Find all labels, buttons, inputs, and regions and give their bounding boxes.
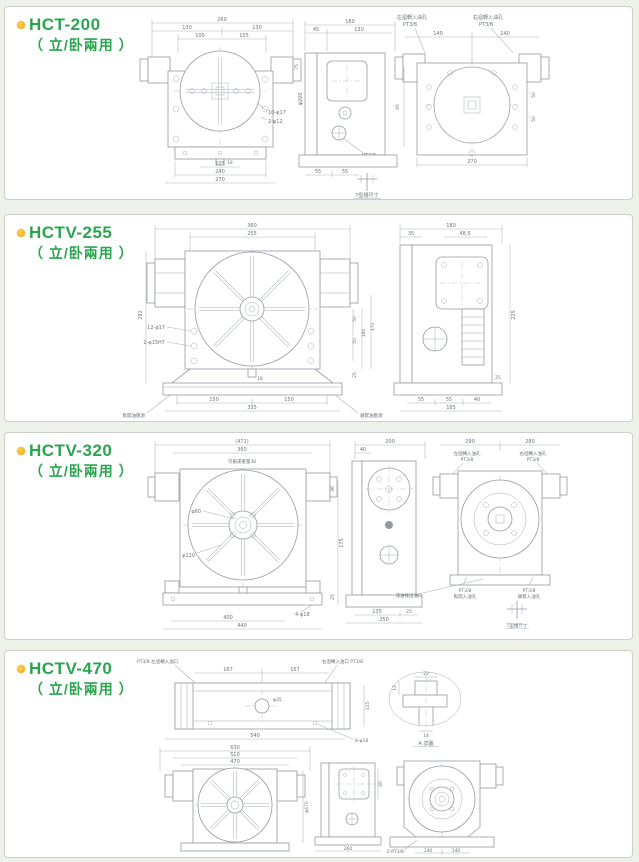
callout-right-oil-port: 右迴轉入油孔 bbox=[520, 450, 547, 457]
dim-label: 14 bbox=[423, 733, 429, 739]
dim-label: 130 bbox=[252, 25, 262, 31]
dim-label: 240 bbox=[215, 169, 225, 175]
panel-hctv-255: HCTV-255 （ 立/卧兩用 ） 360 255 12-φ17 bbox=[4, 214, 633, 422]
dim-label: 130 bbox=[182, 25, 192, 31]
dim-label: 18 bbox=[257, 376, 263, 382]
dim-label: 440 bbox=[237, 623, 247, 629]
dim-label: 360 bbox=[237, 447, 247, 453]
dim-label: 270 bbox=[467, 159, 477, 165]
dim-label: 280 bbox=[525, 439, 535, 445]
dim-label: 105 bbox=[195, 33, 205, 39]
ports-callout: 2-PT3/8 bbox=[387, 849, 404, 855]
dim-label: 48.5 bbox=[459, 231, 470, 237]
title-block: HCTV-255 （ 立/卧兩用 ） bbox=[17, 223, 134, 263]
dim-label: 292 bbox=[138, 310, 144, 320]
dim-label: 140 bbox=[424, 848, 433, 854]
title-block: HCTV-470 （ 立/卧兩用 ） bbox=[17, 659, 134, 699]
dim-label: 260 bbox=[217, 17, 227, 23]
dim-label: 335 bbox=[247, 405, 257, 411]
clamp-source-label: 鎖緊油壓源 bbox=[360, 412, 383, 419]
dim-label: 255 bbox=[247, 231, 257, 237]
dim-label: 470 bbox=[230, 759, 240, 765]
clamp-port-label: 鎖緊入油孔 bbox=[518, 593, 541, 600]
rear-view: 左迴轉入油孔 PT3/8 右迴轉入油孔 PT3/8 140 140 270 95… bbox=[395, 14, 549, 167]
dim-label: 400 bbox=[223, 615, 233, 621]
mount-type-subtitle: （ 立/卧兩用 ） bbox=[29, 243, 134, 263]
tslot-detail: T型槽尺寸 bbox=[353, 173, 381, 199]
drain-port-label: 洩油排出油口 bbox=[396, 592, 423, 599]
dim-label: 130 bbox=[354, 27, 364, 33]
top-view: PT3/8 左迴轉入油口 右迴轉入油口 PT3/8 167 167 φ35 8-… bbox=[137, 658, 371, 744]
dim-label: 36 bbox=[330, 486, 336, 492]
front-view: 360 255 12-φ17 2-φ15H7 18 bbox=[123, 223, 383, 419]
side-view: 40 260 bbox=[315, 763, 384, 852]
dim-label: 180 bbox=[345, 19, 355, 25]
dim-label: φ120 bbox=[182, 553, 195, 559]
unclamp-source-label: 鬆開油壓源 bbox=[123, 412, 146, 419]
model-title: HCTV-470 bbox=[29, 659, 112, 679]
dim-label: 55 bbox=[315, 169, 321, 175]
dim-label: φ470 bbox=[304, 801, 310, 813]
callout-pins: 2-φ12 bbox=[268, 119, 283, 125]
dim-label: φ60 bbox=[191, 509, 201, 515]
callout-right-oil-port: 右迴轉入油口 PT3/8 bbox=[322, 658, 363, 665]
dim-label: 140 bbox=[500, 31, 510, 37]
callout-bolt-holes: 10-φ17 bbox=[268, 110, 286, 116]
dim-label: 180 bbox=[446, 223, 456, 229]
dim-label: 630 bbox=[230, 745, 240, 751]
dim-label: 50 bbox=[531, 116, 537, 122]
dim-label: 510 bbox=[230, 752, 240, 758]
dim-label: 12 bbox=[392, 685, 398, 691]
dim-label: 290 bbox=[465, 439, 475, 445]
dim-label: 105 bbox=[239, 33, 249, 39]
detail-a-label: A 詳圖 bbox=[418, 740, 433, 747]
dim-label: 55 bbox=[342, 169, 348, 175]
callout-left-oil-port: PT3/8 bbox=[461, 457, 474, 463]
dim-label: 25 bbox=[330, 594, 336, 600]
dim-label: 540 bbox=[250, 733, 260, 739]
bullet-icon bbox=[17, 447, 25, 455]
unclamp-port-label: 鬆開入油孔 bbox=[454, 593, 477, 600]
clamp-port-label: PT3/8 bbox=[523, 588, 536, 594]
dim-label: 50 bbox=[531, 92, 537, 98]
note-label: 可搬運重量30 bbox=[228, 458, 256, 465]
front-view: 630 510 470 φ470 bbox=[160, 745, 310, 851]
dim-label: 140 bbox=[452, 848, 461, 854]
side-view: 180 45 130 PT3/8 鬆開入油孔 55 55 T型槽尺寸 bbox=[299, 19, 397, 199]
dim-label: 35 bbox=[408, 231, 414, 237]
bullet-icon bbox=[17, 21, 25, 29]
dim-label: 25 bbox=[406, 609, 412, 615]
dim-label: 135 bbox=[372, 609, 382, 615]
dim-label: 105 bbox=[215, 161, 225, 167]
dim-label: 360 bbox=[247, 223, 257, 229]
dim-label: 55 bbox=[418, 397, 424, 403]
panel-hctv-320: HCTV-320 （ 立/卧兩用 ） (471) 360 可搬運重量30 φ60 bbox=[4, 432, 633, 640]
model-title: HCT-200 bbox=[29, 15, 101, 35]
side-view: 180 35 48.5 225 25 55 55 40 bbox=[394, 223, 517, 411]
dim-label: 167 bbox=[223, 667, 233, 673]
dim-label: φ35 bbox=[273, 697, 282, 703]
unclamp-port-label: PT3/8 bbox=[459, 588, 472, 594]
callout-bolt-holes: 4-φ18 bbox=[295, 612, 310, 618]
dim-label: 55 bbox=[446, 397, 452, 403]
mount-type-subtitle: （ 立/卧兩用 ） bbox=[29, 679, 134, 699]
callout-right-oil-port: PT3/8 bbox=[479, 22, 493, 28]
callout-left-oil-port: PT3/8 bbox=[403, 22, 417, 28]
callout-pins: 2-φ15H7 bbox=[143, 340, 165, 346]
callout-right-oil-port: 右迴轉入油孔 bbox=[473, 14, 503, 21]
detail-a: 22 12 14 A 詳圖 bbox=[389, 671, 461, 747]
rear-view: 2-PT3/8 140 140 bbox=[387, 761, 503, 855]
dim-label: 150 bbox=[284, 397, 294, 403]
model-title: HCTV-255 bbox=[29, 223, 112, 243]
front-view: (471) 360 可搬運重量30 φ60 φ120 4-φ bbox=[148, 439, 345, 629]
dim-label: 40 bbox=[378, 781, 384, 787]
dim-label: 18 bbox=[227, 160, 233, 166]
title-block: HCTV-320 （ 立/卧兩用 ） bbox=[17, 441, 134, 481]
dim-label: 225 bbox=[511, 310, 517, 320]
dim-label: 150 bbox=[209, 397, 219, 403]
dim-label: 75 bbox=[294, 64, 300, 70]
mount-type-subtitle: （ 立/卧兩用 ） bbox=[29, 461, 134, 481]
dim-label: φ200 bbox=[298, 93, 304, 106]
model-title: HCTV-320 bbox=[29, 441, 112, 461]
panel-hctv-470: HCTV-470 （ 立/卧兩用 ） PT3/8 左迴轉入油口 右迴轉入油口 P… bbox=[4, 650, 633, 858]
bullet-icon bbox=[17, 229, 25, 237]
dim-label: (471) bbox=[235, 439, 248, 445]
bullet-icon bbox=[17, 665, 25, 673]
dim-label: 167 bbox=[290, 667, 300, 673]
dim-label: 25 bbox=[495, 375, 501, 381]
dim-label: 200 bbox=[385, 439, 395, 445]
dim-label: 115 bbox=[365, 702, 371, 711]
dim-label: 95 bbox=[395, 104, 401, 110]
dim-label: 165 bbox=[446, 405, 456, 411]
callout-right-oil-port: PT3/8 bbox=[527, 457, 540, 463]
callout-left-oil-port: PT3/8 左迴轉入油口 bbox=[137, 658, 178, 665]
tslot-label: T型槽尺寸 bbox=[354, 192, 378, 199]
callout-bolt-holes: 12-φ17 bbox=[147, 325, 165, 331]
panel-hct-200: HCT-200 （ 立/卧兩用 ） 260 130 130 105 105 bbox=[4, 6, 633, 200]
dim-label: 25 bbox=[352, 372, 358, 378]
tslot-label: T型槽尺寸 bbox=[506, 622, 528, 629]
callout-left-oil-port: 左迴轉入油孔 bbox=[397, 14, 427, 21]
dim-label: 270 bbox=[215, 177, 225, 183]
tslot-detail: T型槽尺寸 bbox=[505, 601, 529, 629]
dim-label: 40 bbox=[360, 447, 366, 453]
dim-label: 45 bbox=[313, 27, 319, 33]
callout-bolt-holes: 8-φ18 bbox=[355, 738, 368, 744]
dim-label: 175 bbox=[339, 538, 345, 548]
title-block: HCT-200 （ 立/卧兩用 ） bbox=[17, 15, 134, 55]
dim-label: 40 bbox=[474, 397, 480, 403]
mount-type-subtitle: （ 立/卧兩用 ） bbox=[29, 35, 134, 55]
dim-label: 250 bbox=[379, 617, 389, 623]
dim-label: 260 bbox=[344, 846, 353, 852]
dim-label: 140 bbox=[433, 31, 443, 37]
callout-left-oil-port: 左迴轉入油孔 bbox=[454, 450, 481, 457]
front-view: 260 130 130 105 105 1 bbox=[140, 17, 304, 183]
